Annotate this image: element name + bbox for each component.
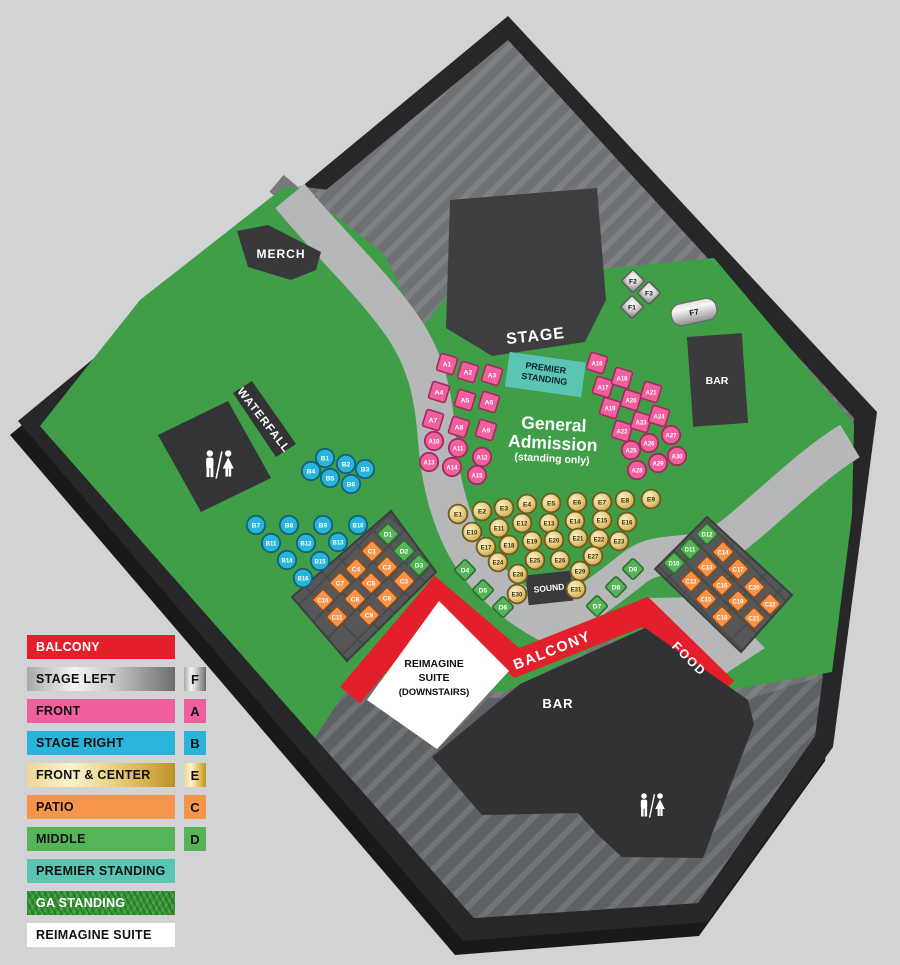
legend-row-balcony: BALCONY xyxy=(27,635,206,659)
legend-row-front-center: FRONT & CENTERE xyxy=(27,763,206,787)
seat-b4[interactable]: B4 xyxy=(302,462,320,480)
seat-label: A3 xyxy=(488,372,497,379)
legend-section-badge: B xyxy=(184,731,206,755)
seat-label: A28 xyxy=(631,468,643,474)
seat-label: B1 xyxy=(321,455,330,462)
bar-bottom-label: BAR xyxy=(542,696,573,711)
seat-b8[interactable]: B8 xyxy=(280,516,298,534)
seat-label: C5 xyxy=(367,580,376,587)
seat-label: D10 xyxy=(668,561,680,567)
seat-e13[interactable]: E13 xyxy=(540,514,559,533)
seat-label: C3 xyxy=(400,578,409,585)
seat-label: B14 xyxy=(281,558,293,564)
suite-label-3: (DOWNSTAIRS) xyxy=(399,687,470,698)
seat-label: B15 xyxy=(314,559,326,565)
seat-e24[interactable]: E24 xyxy=(489,553,508,572)
seat-label: C13 xyxy=(701,565,713,571)
seat-label: E10 xyxy=(467,530,478,536)
legend-swatch-label: STAGE LEFT xyxy=(27,667,175,691)
legend-section-badge: A xyxy=(184,699,206,723)
seat-label: A26 xyxy=(643,441,655,447)
seat-label: C12 xyxy=(685,579,697,585)
legend-section-badge: C xyxy=(184,795,206,819)
seat-e21[interactable]: E21 xyxy=(569,529,588,548)
legend-swatch-label: MIDDLE xyxy=(27,827,175,851)
seat-e11[interactable]: E11 xyxy=(490,519,509,538)
legend-swatch-label: GA STANDING xyxy=(27,891,175,915)
seat-label: A1 xyxy=(443,361,452,368)
seat-label: B12 xyxy=(300,541,312,547)
legend-section-badge: D xyxy=(184,827,206,851)
seat-label: A17 xyxy=(597,385,609,391)
legend-swatch-label: STAGE RIGHT xyxy=(27,731,175,755)
seat-label: E20 xyxy=(549,538,560,544)
seat-label: E4 xyxy=(523,501,532,508)
seat-e15[interactable]: E15 xyxy=(593,511,612,530)
venue-map-page: PREMIER STANDING F7 A1A2A3A4A5A6A7A8A9A1… xyxy=(0,0,900,965)
seat-e4[interactable]: E4 xyxy=(518,495,537,514)
seat-e6[interactable]: E6 xyxy=(568,493,587,512)
seat-label: A18 xyxy=(616,376,628,382)
legend-section-badge: F xyxy=(184,667,206,691)
seat-label: E1 xyxy=(454,511,463,518)
seat-a28[interactable]: A28 xyxy=(628,461,646,479)
seat-label: A25 xyxy=(625,448,637,454)
seat-label: E8 xyxy=(621,497,630,504)
seat-label: A13 xyxy=(423,460,435,466)
seat-a29[interactable]: A29 xyxy=(649,454,667,472)
seat-b16[interactable]: B16 xyxy=(294,569,312,587)
seat-label: A24 xyxy=(653,414,665,420)
seat-label: D2 xyxy=(400,548,409,555)
seat-label: B5 xyxy=(326,475,335,482)
seat-e28[interactable]: E28 xyxy=(509,565,528,584)
seat-label: A6 xyxy=(485,399,494,406)
legend-row-patio: PATIOC xyxy=(27,795,206,819)
seat-e27[interactable]: E27 xyxy=(584,547,603,566)
seat-label: B3 xyxy=(361,466,370,473)
seat-label: E22 xyxy=(594,537,605,543)
seat-e16[interactable]: E16 xyxy=(618,513,637,532)
seat-label: E31 xyxy=(571,587,582,593)
seat-e5[interactable]: E5 xyxy=(542,494,561,513)
seat-label: B13 xyxy=(332,540,344,546)
seat-label: A23 xyxy=(635,420,647,426)
seat-label: E17 xyxy=(481,545,492,551)
seat-label: A29 xyxy=(652,461,664,467)
seat-label: D5 xyxy=(479,587,488,594)
legend-row-stage-right: STAGE RIGHTB xyxy=(27,731,206,755)
seat-a25[interactable]: A25 xyxy=(622,441,640,459)
seat-b2[interactable]: B2 xyxy=(337,455,355,473)
seat-a15[interactable]: A15 xyxy=(468,466,486,484)
seat-label: A15 xyxy=(471,473,483,479)
seat-e23[interactable]: E23 xyxy=(610,532,629,551)
seat-label: A8 xyxy=(455,424,464,431)
seat-label: B9 xyxy=(319,522,328,529)
seat-label: E29 xyxy=(575,569,586,575)
seat-label: B6 xyxy=(347,481,356,488)
seat-label: D3 xyxy=(415,562,424,569)
seat-label: F1 xyxy=(628,304,636,311)
legend-row-reimagine-suite: REIMAGINE SUITE xyxy=(27,923,206,947)
legend-row-stage-left: STAGE LEFTF xyxy=(27,667,206,691)
seat-e26[interactable]: E26 xyxy=(551,551,570,570)
seat-label: C9 xyxy=(365,612,374,619)
seat-label: E9 xyxy=(647,496,656,503)
seat-b15[interactable]: B15 xyxy=(311,552,329,570)
legend-swatch-label: FRONT & CENTER xyxy=(27,763,175,787)
seat-b3[interactable]: B3 xyxy=(356,460,374,478)
seat-label: E24 xyxy=(493,560,504,566)
seat-label: C10 xyxy=(317,598,329,604)
seat-label: C20 xyxy=(748,585,760,591)
seat-label: D6 xyxy=(499,604,508,611)
seat-label: D12 xyxy=(701,532,713,538)
seat-label: E5 xyxy=(547,500,556,507)
seat-a11[interactable]: A11 xyxy=(449,439,467,457)
seat-label: E14 xyxy=(570,519,581,525)
seat-b5[interactable]: B5 xyxy=(321,469,339,487)
seat-e12[interactable]: E12 xyxy=(513,514,532,533)
seat-label: B11 xyxy=(266,541,277,547)
legend-row-front: FRONTA xyxy=(27,699,206,723)
seat-label: C18 xyxy=(716,615,728,621)
seat-label: E11 xyxy=(494,526,505,532)
seat-label: A22 xyxy=(616,429,628,435)
seat-label: E25 xyxy=(530,558,541,564)
general-admission-label: General Admission (standing only) xyxy=(507,412,599,468)
seat-label: C15 xyxy=(700,597,712,603)
seat-label: B4 xyxy=(307,468,316,475)
seat-e3[interactable]: E3 xyxy=(495,499,514,518)
seat-e19[interactable]: E19 xyxy=(523,532,542,551)
seat-label: D9 xyxy=(629,566,638,573)
seat-label: E7 xyxy=(598,499,607,506)
seat-label: C2 xyxy=(383,564,392,571)
seat-label: C6 xyxy=(383,595,392,602)
seat-label: E16 xyxy=(622,520,633,526)
seat-label: E12 xyxy=(517,521,528,527)
seat-b12[interactable]: B12 xyxy=(297,534,315,552)
legend-swatch-label: PREMIER STANDING xyxy=(27,859,175,883)
legend-section-badge: E xyxy=(184,763,206,787)
legend-row-middle: MIDDLED xyxy=(27,827,206,851)
seat-a13[interactable]: A13 xyxy=(420,453,438,471)
bar-right-label: BAR xyxy=(706,375,729,387)
seat-b9[interactable]: B9 xyxy=(314,516,332,534)
seat-b14[interactable]: B14 xyxy=(278,551,296,569)
seat-label: A2 xyxy=(464,369,473,376)
legend-row-premier-standing: PREMIER STANDING xyxy=(27,859,206,883)
seat-e30[interactable]: E30 xyxy=(508,585,527,604)
legend-row-ga-standing: GA STANDING xyxy=(27,891,206,915)
seat-label: A9 xyxy=(482,427,491,434)
seat-e18[interactable]: E18 xyxy=(500,536,519,555)
seat-label: A19 xyxy=(604,406,616,412)
seat-a27[interactable]: A27 xyxy=(662,426,680,444)
seat-e10[interactable]: E10 xyxy=(463,523,482,542)
seat-label: E13 xyxy=(544,521,555,527)
seat-label: A7 xyxy=(429,417,438,424)
seat-label: E15 xyxy=(597,518,608,524)
seat-label: A5 xyxy=(461,397,470,404)
suite-label-2: SUITE xyxy=(419,672,450,684)
seat-a26[interactable]: A26 xyxy=(640,434,658,452)
seat-label: D8 xyxy=(612,584,621,591)
seat-a30[interactable]: A30 xyxy=(668,447,686,465)
seat-b13[interactable]: B13 xyxy=(329,533,347,551)
seat-label: D11 xyxy=(685,547,696,553)
legend-swatch-label: BALCONY xyxy=(27,635,175,659)
seat-b10[interactable]: B10 xyxy=(349,516,367,534)
seat-label: A10 xyxy=(428,439,440,445)
seat-label: E19 xyxy=(527,539,538,545)
seat-label: A14 xyxy=(446,465,458,471)
seat-e9[interactable]: E9 xyxy=(642,490,661,509)
seat-label: E28 xyxy=(513,572,524,578)
seat-e1[interactable]: E1 xyxy=(449,505,468,524)
seat-label: A11 xyxy=(453,446,464,452)
suite-label-1: REIMAGINE xyxy=(404,658,464,670)
seat-label: C16 xyxy=(716,583,728,589)
seat-e22[interactable]: E22 xyxy=(590,530,609,549)
seat-a12[interactable]: A12 xyxy=(473,448,491,466)
legend-swatch-label: PATIO xyxy=(27,795,175,819)
seat-b7[interactable]: B7 xyxy=(247,516,265,534)
merch-label: MERCH xyxy=(257,247,306,261)
seat-label: E21 xyxy=(573,536,584,542)
seat-label: C11 xyxy=(332,615,343,621)
seat-label: A20 xyxy=(625,398,637,404)
seat-e25[interactable]: E25 xyxy=(526,551,545,570)
seat-label: A21 xyxy=(645,390,657,396)
legend: BALCONYSTAGE LEFTFFRONTASTAGE RIGHTBFRON… xyxy=(27,635,206,947)
seat-label: E23 xyxy=(614,539,625,545)
seat-e8[interactable]: E8 xyxy=(616,491,635,510)
seat-e7[interactable]: E7 xyxy=(593,493,612,512)
seat-e29[interactable]: E29 xyxy=(571,562,590,581)
seat-label: E3 xyxy=(500,505,509,512)
seat-label: E6 xyxy=(573,499,582,506)
seat-label: C22 xyxy=(764,602,776,608)
seat-a14[interactable]: A14 xyxy=(443,458,461,476)
seat-a10[interactable]: A10 xyxy=(425,432,443,450)
seat-b11[interactable]: B11 xyxy=(262,534,280,552)
seat-e31[interactable]: E31 xyxy=(567,580,586,599)
seat-label: B8 xyxy=(285,522,294,529)
seat-label: E18 xyxy=(504,543,515,549)
seat-label: B7 xyxy=(252,522,261,529)
seat-label: C4 xyxy=(352,566,361,573)
seat-label: B2 xyxy=(342,461,351,468)
seat-label: F2 xyxy=(629,278,637,285)
seat-label: E30 xyxy=(512,592,523,598)
seat-label: C14 xyxy=(717,550,729,556)
seat-label: C7 xyxy=(336,580,345,587)
seat-e14[interactable]: E14 xyxy=(566,512,585,531)
seat-label: E27 xyxy=(588,554,599,560)
seat-label: E2 xyxy=(478,508,487,515)
seat-label: D4 xyxy=(461,567,470,574)
seat-e20[interactable]: E20 xyxy=(545,531,564,550)
seat-label: C19 xyxy=(732,599,744,605)
seat-label: A16 xyxy=(591,361,603,367)
seat-label: C21 xyxy=(748,616,760,622)
legend-swatch-label: REIMAGINE SUITE xyxy=(27,923,175,947)
seat-label: B16 xyxy=(297,576,309,582)
seat-label: A4 xyxy=(435,389,444,396)
seat-label: A30 xyxy=(671,454,683,460)
seat-b6[interactable]: B6 xyxy=(342,475,360,493)
seat-label: A27 xyxy=(665,433,677,439)
seat-label: D7 xyxy=(593,603,602,610)
seat-label: D1 xyxy=(384,531,393,538)
seat-label: E26 xyxy=(555,558,566,564)
seat-label: A12 xyxy=(476,455,488,461)
seat-label: F3 xyxy=(645,290,653,297)
seat-label: C17 xyxy=(732,567,744,573)
seat-e2[interactable]: E2 xyxy=(473,502,492,521)
seat-label: C1 xyxy=(368,548,377,555)
legend-swatch-label: FRONT xyxy=(27,699,175,723)
seat-label: B10 xyxy=(352,523,364,529)
seat-label: C8 xyxy=(351,596,360,603)
